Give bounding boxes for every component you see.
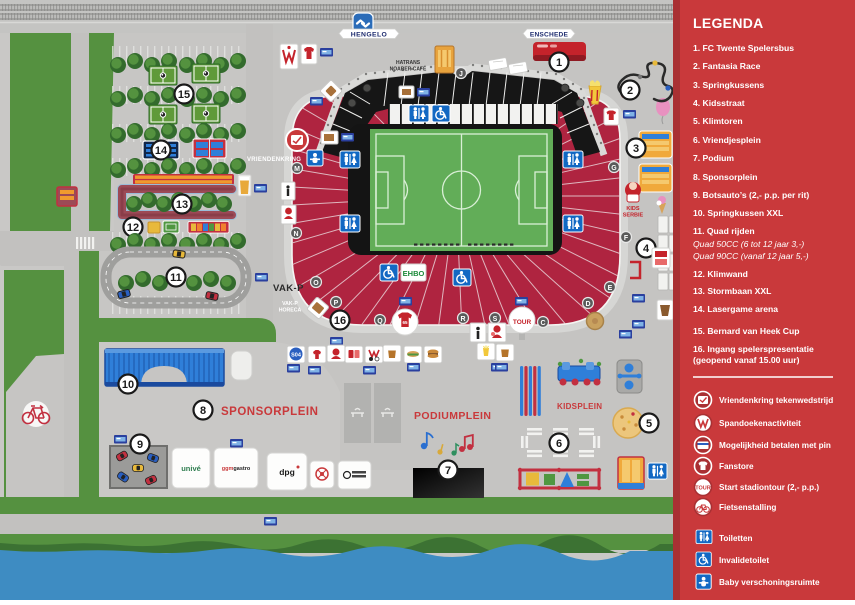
svg-text:8. Sponsorplein: 8. Sponsorplein — [693, 172, 757, 182]
svg-text:11. Quad rijden: 11. Quad rijden — [693, 226, 755, 236]
svg-text:3: 3 — [633, 143, 639, 155]
svg-text:Q: Q — [377, 318, 383, 325]
svg-text:SERBIE: SERBIE — [623, 213, 644, 219]
svg-text:C: C — [540, 320, 545, 327]
svg-text:6. Vriendjesplein: 6. Vriendjesplein — [693, 135, 761, 145]
svg-text:7: 7 — [445, 465, 451, 477]
svg-text:TOUR: TOUR — [513, 319, 532, 326]
svg-text:9: 9 — [137, 439, 143, 451]
svg-text:2: 2 — [627, 85, 633, 97]
svg-text:F: F — [624, 235, 629, 242]
svg-text:Start stadiontour (2,- p.p.): Start stadiontour (2,- p.p.) — [719, 483, 819, 492]
svg-text:Quad 90CC (vanaf 12 jaar 5,-): Quad 90CC (vanaf 12 jaar 5,-) — [693, 251, 809, 261]
svg-text:P: P — [334, 300, 339, 307]
svg-text:M: M — [294, 166, 300, 173]
svg-text:7. Podium: 7. Podium — [693, 153, 734, 163]
svg-text:15: 15 — [178, 89, 190, 101]
svg-text:1. FC Twente Spelersbus: 1. FC Twente Spelersbus — [693, 43, 794, 53]
svg-text:J: J — [459, 71, 463, 78]
svg-text:11: 11 — [170, 272, 182, 284]
svg-text:G: G — [611, 165, 617, 172]
svg-text:LEGENDA: LEGENDA — [693, 15, 764, 31]
svg-text:VAK-P: VAK-P — [282, 301, 298, 307]
svg-text:14: 14 — [155, 145, 168, 157]
svg-text:4: 4 — [643, 243, 650, 255]
svg-text:(geopend vanaf 15.00 uur): (geopend vanaf 15.00 uur) — [693, 355, 800, 365]
svg-text:Invalidetoilet: Invalidetoilet — [719, 556, 769, 565]
svg-text:KIDSPLEIN: KIDSPLEIN — [557, 402, 602, 411]
svg-text:2. Fantasia Race: 2. Fantasia Race — [693, 61, 761, 71]
svg-text:TOUR: TOUR — [695, 486, 711, 492]
svg-text:PODIUMPLEIN: PODIUMPLEIN — [414, 410, 491, 422]
svg-text:Fietsenstalling: Fietsenstalling — [719, 503, 776, 512]
svg-text:13: 13 — [176, 199, 188, 211]
svg-text:dpg: dpg — [279, 467, 295, 477]
svg-text:12. Klimwand: 12. Klimwand — [693, 269, 748, 279]
svg-text:Quad 50CC (6 tot 12 jaar 3,-): Quad 50CC (6 tot 12 jaar 3,-) — [693, 239, 804, 249]
svg-text:O: O — [313, 280, 319, 287]
svg-text:S: S — [493, 316, 498, 323]
svg-text:16: 16 — [334, 315, 346, 327]
svg-text:12: 12 — [127, 222, 139, 234]
svg-text:6: 6 — [556, 438, 562, 450]
svg-text:EHBO: EHBO — [403, 269, 425, 278]
svg-text:R: R — [460, 316, 465, 323]
svg-text:Vriendenkring tekenwedstrijd: Vriendenkring tekenwedstrijd — [719, 396, 833, 405]
svg-text:4. Kidsstraat: 4. Kidsstraat — [693, 98, 745, 108]
svg-text:univé: univé — [181, 464, 201, 473]
svg-text:VAK-P: VAK-P — [273, 283, 304, 294]
svg-text:14. Lasergame arena: 14. Lasergame arena — [693, 304, 778, 314]
svg-text:ENSCHEDE: ENSCHEDE — [530, 32, 569, 39]
svg-text:1: 1 — [556, 57, 562, 69]
svg-text:S04: S04 — [291, 353, 302, 359]
svg-text:Mogelijkheid betalen met pin: Mogelijkheid betalen met pin — [719, 441, 831, 450]
svg-text:3. Springkussens: 3. Springkussens — [693, 80, 764, 90]
svg-text:Fanstore: Fanstore — [719, 462, 754, 471]
svg-text:NOABER CAFÉ: NOABER CAFÉ — [390, 65, 427, 73]
svg-text:5. Klimtoren: 5. Klimtoren — [693, 116, 743, 126]
svg-text:Spandoekenactiviteit: Spandoekenactiviteit — [719, 419, 801, 428]
svg-text:N: N — [293, 231, 298, 238]
svg-text:KIDS: KIDS — [626, 206, 639, 212]
svg-text:Baby verschoningsruimte: Baby verschoningsruimte — [719, 578, 820, 587]
svg-text:Toiletten: Toiletten — [719, 534, 753, 543]
svg-text:16. Ingang spelerspresentatie: 16. Ingang spelerspresentatie — [693, 344, 814, 354]
svg-text:VRIENDENKRING: VRIENDENKRING — [247, 157, 301, 163]
svg-text:E: E — [608, 285, 613, 292]
svg-text:ggmgastro: ggmgastro — [222, 466, 251, 472]
svg-text:9. Botsauto’s (2,- p.p. per ri: 9. Botsauto’s (2,- p.p. per rit) — [693, 190, 809, 200]
svg-text:10: 10 — [122, 379, 134, 391]
svg-text:HORECA: HORECA — [279, 308, 302, 314]
svg-text:8: 8 — [200, 405, 206, 417]
svg-text:D: D — [585, 301, 590, 308]
svg-text:5: 5 — [646, 418, 652, 430]
svg-text:10. Springkussen XXL: 10. Springkussen XXL — [693, 208, 783, 218]
svg-text:HATRANS: HATRANS — [396, 60, 421, 66]
svg-text:13. Stormbaan XXL: 13. Stormbaan XXL — [693, 286, 771, 296]
svg-text:65: 65 — [402, 320, 408, 325]
svg-text:15. Bernard van Heek Cup: 15. Bernard van Heek Cup — [693, 326, 800, 336]
svg-text:HENGELO: HENGELO — [351, 32, 387, 39]
svg-text:SPONSORPLEIN: SPONSORPLEIN — [221, 406, 318, 418]
